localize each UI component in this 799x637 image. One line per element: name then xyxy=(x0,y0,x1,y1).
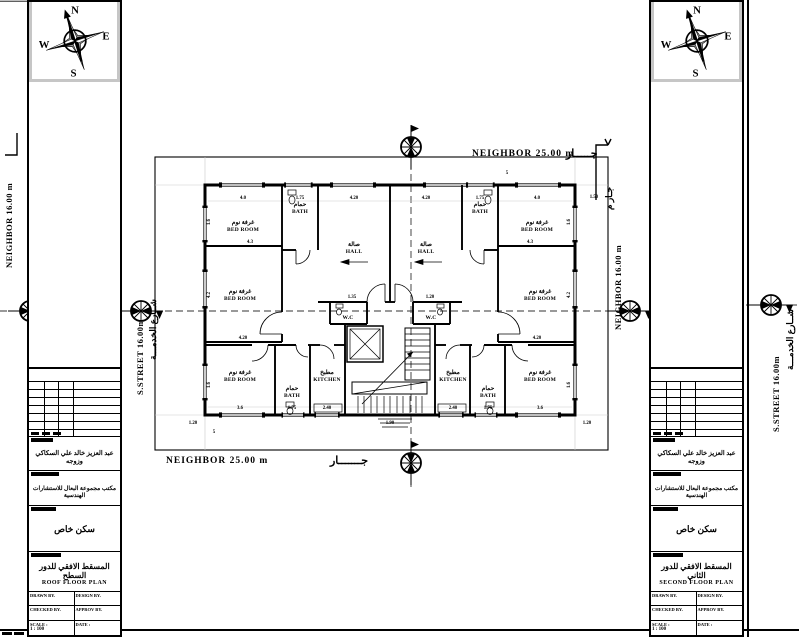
room-label-en: BATH xyxy=(472,209,489,215)
room-label-en: BED ROOM xyxy=(227,227,260,233)
scale-value: 1 : 100 xyxy=(30,627,73,632)
room-label-ar: حمام xyxy=(474,201,487,208)
left-sheet-panel: N E S W OWNER . عبد العزيز خالد علي السك… xyxy=(27,0,122,637)
right-sheet-panel: N E S W OWNER . عبد العزيز خالد علي السك… xyxy=(649,0,744,637)
dim-label: 2.40 xyxy=(323,406,332,411)
dwg-title-ar: المسقط الافقي للدور الثاني xyxy=(653,562,740,580)
room-label-ar: مطبخ xyxy=(446,369,460,376)
design-by-label: DESIGN BY. xyxy=(75,592,121,606)
dwg-title-label: DWG.TITLE . xyxy=(653,553,683,557)
dwg-title-en: SECOND FLOOR PLAN xyxy=(653,580,740,586)
project-label: PROJECT . xyxy=(31,507,56,511)
dim-label: 1.6 xyxy=(567,381,572,388)
dim-label: 4.2 xyxy=(567,291,572,298)
logo-row xyxy=(29,369,120,382)
dimension-labels: 4.01.754.204.201.754.04.34.34.204.201.35… xyxy=(189,171,599,435)
room-label-ar: غرفة نوم xyxy=(526,219,549,226)
designed-name: مكتب مجموعة البعال للاستشارات الهندسية xyxy=(653,485,740,499)
room-label-en: BED ROOM xyxy=(524,377,557,383)
dim-label: 5 xyxy=(213,430,216,435)
room-label-en: BED ROOM xyxy=(521,227,554,233)
compass-n: N xyxy=(71,5,79,17)
neighbor-top-label-ar: جـــــار xyxy=(565,148,598,160)
sheet-separator-line xyxy=(747,0,749,637)
leader-bracket-far-left xyxy=(5,133,17,155)
owner-name: عبد العزيز خالد علي السكاكي وزوجه xyxy=(653,449,740,465)
street-far-right-label: S.STREET 16.00m xyxy=(771,356,781,432)
dim-label: 5 xyxy=(506,171,509,176)
compass-rose-right: N E S W xyxy=(651,2,742,82)
room-label-en: BATH xyxy=(292,209,309,215)
room-label-en: BATH xyxy=(480,393,497,399)
fields-grid: DRAWN BY. DESIGN BY. CHECKED BY. APPROV … xyxy=(651,592,742,635)
revision-entry-marks xyxy=(31,432,61,435)
compass-w: W xyxy=(39,39,50,51)
room-label-ar: غرفة نوم xyxy=(229,369,252,376)
neighbor-far-left-label: NEIGHBOR 16.00 m xyxy=(4,183,14,268)
approved-by-label: APPROV BY. xyxy=(697,606,743,620)
drawn-by-label: DRAWN BY. xyxy=(651,592,697,606)
room-label-ar: غرفة نوم xyxy=(232,219,255,226)
drawing-sheet: NEIGHBOR 25.00 m جـــــار NEIGHBOR 25.00… xyxy=(0,0,799,637)
date-field: DATE : xyxy=(697,621,743,635)
staircase xyxy=(347,326,430,413)
dim-label: 1.75 xyxy=(288,406,297,411)
dim-label: 4.3 xyxy=(247,240,254,245)
dim-label: 4.0 xyxy=(534,196,541,201)
dim-label: 1.20 xyxy=(583,421,592,426)
dim-label: 1.75 xyxy=(476,196,485,201)
dim-label: 4.20 xyxy=(350,196,359,201)
room-label-en: KITCHEN xyxy=(313,377,340,383)
sheet-corner-marks xyxy=(2,632,24,635)
neighbor-top-label: NEIGHBOR 25.00 m xyxy=(472,149,574,159)
room-label-ar: غرفة نوم xyxy=(229,288,252,295)
room-label-en: HALL xyxy=(346,249,363,255)
room-label-ar: حمام xyxy=(482,385,495,392)
dim-label: 1.20 xyxy=(189,421,198,426)
compass-n: N xyxy=(693,5,701,17)
title-block-left: OWNER . عبد العزيز خالد علي السكاكي وزوج… xyxy=(29,367,120,635)
entrance-steps xyxy=(378,419,412,427)
approved-by-label: APPROV BY. xyxy=(75,606,121,620)
drawn-by-label: DRAWN BY. xyxy=(29,592,75,606)
dim-label: 1.50 xyxy=(590,195,599,200)
room-label-ar: غرفة نوم xyxy=(529,369,552,376)
fields-grid: DRAWN BY. DESIGN BY. CHECKED BY. APPROV … xyxy=(29,592,120,635)
dwg-title-label: DWG.TITLE . xyxy=(31,553,61,557)
dim-label: 2.40 xyxy=(449,406,458,411)
room-label-ar: حمام xyxy=(286,385,299,392)
compass-e: E xyxy=(724,30,731,42)
dim-label: 1.75 xyxy=(484,406,493,411)
dwg-title-ar: المسقط الافقي للدور السطح xyxy=(31,562,118,580)
dim-label: 1.6 xyxy=(207,381,212,388)
room-label-en: W.C xyxy=(426,315,437,321)
dim-label: 4.3 xyxy=(527,240,534,245)
compass-s: S xyxy=(692,67,698,77)
owner-label: OWNER . xyxy=(31,438,53,442)
owner-name: عبد العزيز خالد علي السكاكي وزوجه xyxy=(31,449,118,465)
street-far-right-label-ar: شــارع الخدمـــة xyxy=(785,309,796,370)
dim-label: 4.20 xyxy=(533,336,542,341)
designed-label: DESIGNED . xyxy=(653,472,681,476)
scale-field: SCALE : 1 : 100 xyxy=(651,621,697,635)
dim-label: 1.90 xyxy=(386,421,395,426)
dim-label: 4.20 xyxy=(422,196,431,201)
designed-name: مكتب مجموعة البعال للاستشارات الهندسية xyxy=(31,485,118,499)
room-label-ar: صالة xyxy=(420,241,432,248)
checked-by-label: CHECKED BY. xyxy=(651,606,697,620)
scale-field: SCALE : 1 : 100 xyxy=(29,621,75,635)
room-label-ar: حمام xyxy=(294,201,307,208)
room-label-en: HALL xyxy=(418,249,435,255)
dim-label: 1.35 xyxy=(348,295,357,300)
title-block-right: OWNER . عبد العزيز خالد علي السكاكي وزوج… xyxy=(651,367,742,635)
revision-entry-marks xyxy=(653,432,683,435)
dwg-title-en: ROOF FLOOR PLAN xyxy=(31,580,118,586)
room-label-en: BATH xyxy=(284,393,301,399)
design-by-label: DESIGN BY. xyxy=(697,592,743,606)
room-label-ar: غرفة نوم xyxy=(529,288,552,295)
compass-e: E xyxy=(102,30,109,42)
project-label: PROJECT . xyxy=(653,507,678,511)
room-label-en: W.C xyxy=(343,315,354,321)
compass-w: W xyxy=(661,39,672,51)
room-label-en: KITCHEN xyxy=(439,377,466,383)
project-name: سكن خاص xyxy=(31,524,118,535)
date-field: DATE : xyxy=(75,621,121,635)
dim-label: 4.2 xyxy=(207,291,212,298)
compass-s: S xyxy=(70,67,76,77)
dim-label: 1.6 xyxy=(567,218,572,225)
room-label-en: BED ROOM xyxy=(224,296,257,302)
revision-table xyxy=(651,382,742,437)
interior-walls xyxy=(205,185,575,415)
dim-label: 1.6 xyxy=(207,218,212,225)
logo-row xyxy=(651,369,742,382)
dim-label: 3.6 xyxy=(237,406,244,411)
street-left-label-ar: شــارع الخدمـــة xyxy=(148,299,159,360)
room-label-en: BED ROOM xyxy=(224,377,257,383)
neighbor-right-label: NEIGHBOR 16.00 m xyxy=(613,245,623,330)
compass-rose-left: N E S W xyxy=(29,2,120,82)
room-label-ar: مطبخ xyxy=(320,369,334,376)
checked-by-label: CHECKED BY. xyxy=(29,606,75,620)
revision-table xyxy=(29,382,120,437)
dim-label: 1.75 xyxy=(296,196,305,201)
street-left-label: S.STREET 16.00m xyxy=(135,319,145,395)
neighbor-bottom-label-ar: جـــــــار xyxy=(329,455,368,467)
designed-label: DESIGNED . xyxy=(31,472,59,476)
dim-label: 3.6 xyxy=(537,406,544,411)
room-label-en: BED ROOM xyxy=(524,296,557,302)
neighbor-bottom-label: NEIGHBOR 25.00 m xyxy=(166,456,268,466)
dim-label: 4.0 xyxy=(240,196,247,201)
owner-label: OWNER . xyxy=(653,438,675,442)
neighbor-right-label-ar: جـار م xyxy=(604,186,615,210)
project-name: سكن خاص xyxy=(653,524,740,535)
dim-label: 1.20 xyxy=(426,295,435,300)
room-label-ar: صالة xyxy=(348,241,360,248)
scale-value: 1 : 100 xyxy=(652,627,695,632)
dim-label: 4.20 xyxy=(239,336,248,341)
